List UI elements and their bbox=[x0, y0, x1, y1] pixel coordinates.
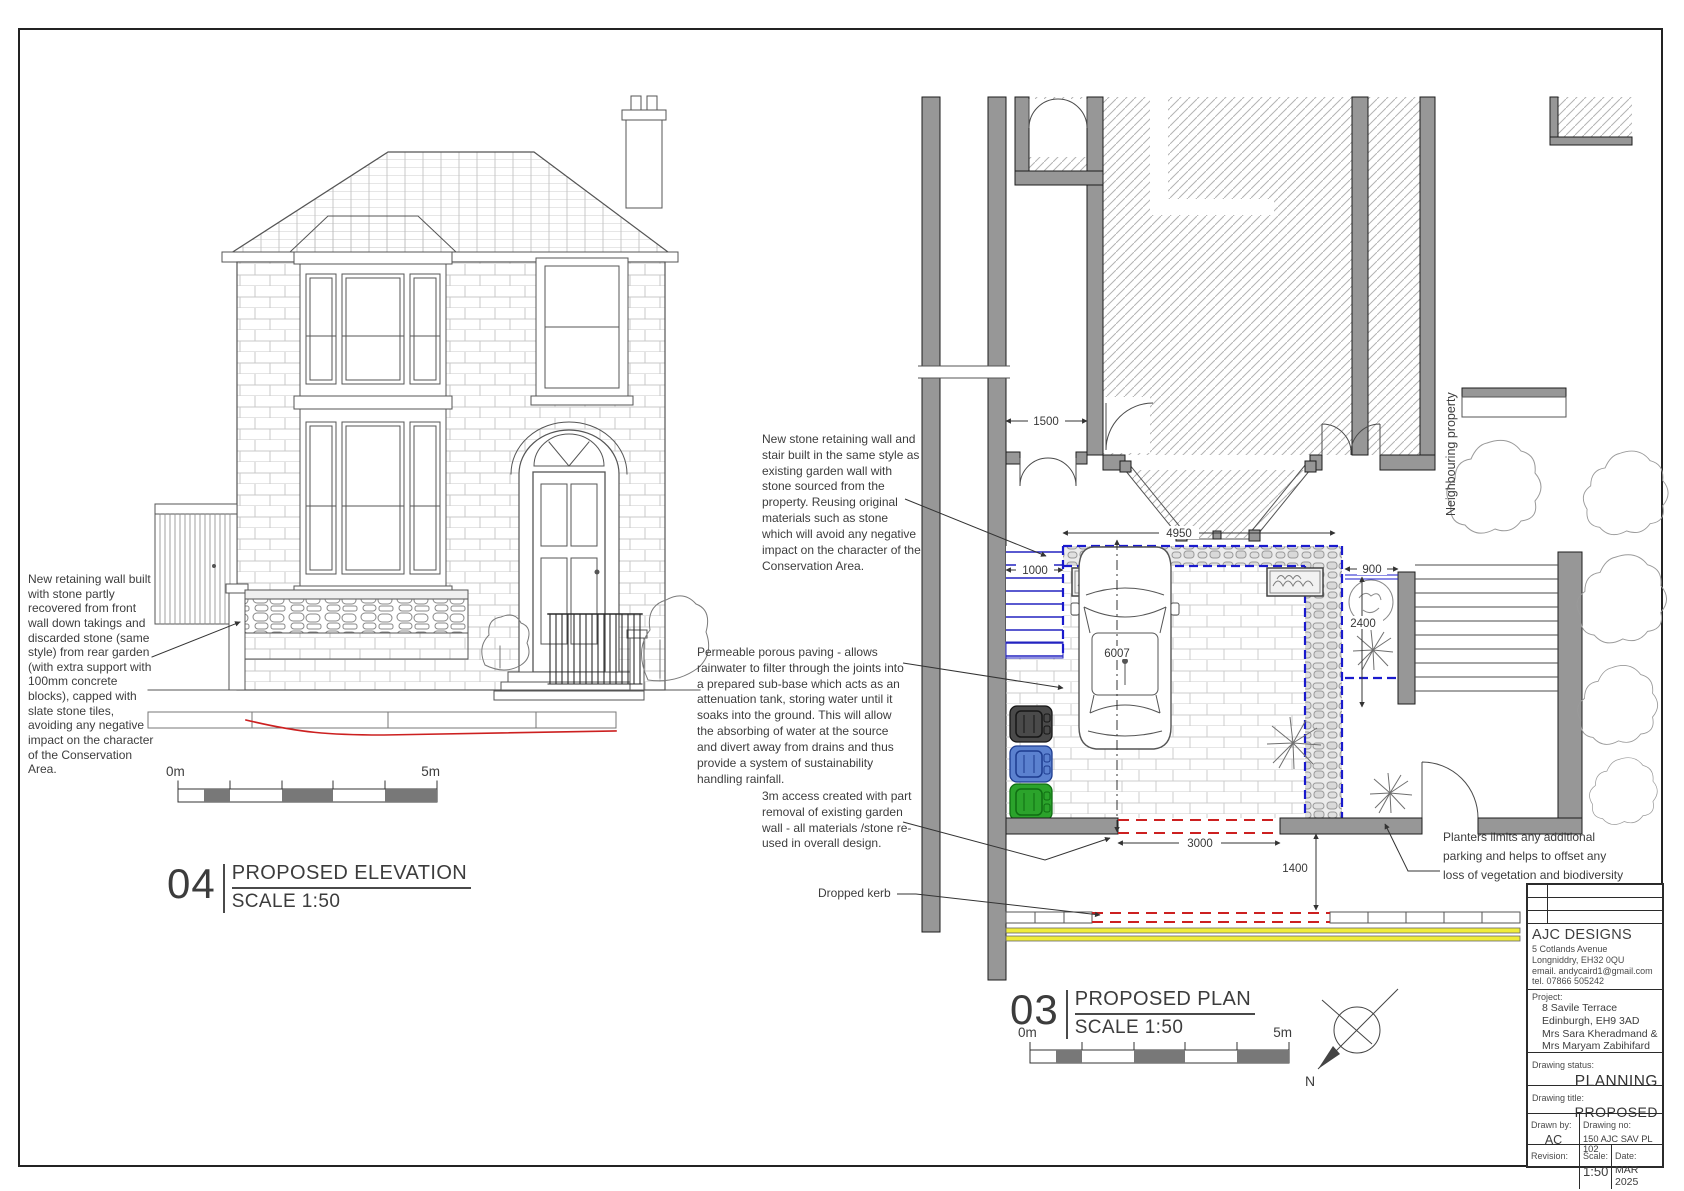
road-markings bbox=[1006, 928, 1520, 941]
drawn-by-label: Drawn by: bbox=[1531, 1120, 1572, 1130]
annotation-access: 3m access created with part removal of e… bbox=[762, 789, 922, 852]
drawing-no-label: Drawing no: bbox=[1583, 1120, 1631, 1130]
project-line: Edinburgh, EH9 3AD bbox=[1542, 1015, 1658, 1028]
scale-bar-end-label: 5m bbox=[1273, 1025, 1292, 1040]
roof bbox=[228, 152, 672, 255]
plan-title: 03 PROPOSED PLAN SCALE 1:50 bbox=[1010, 988, 1255, 1039]
chimney bbox=[622, 96, 666, 208]
revision-label: Revision: bbox=[1531, 1151, 1568, 1161]
title-divider bbox=[1066, 990, 1068, 1039]
project-block: Project: 8 Savile Terrace Edinburgh, EH9… bbox=[1528, 990, 1662, 1053]
leader-retaining-elevation bbox=[152, 622, 240, 657]
drawing-sheet: 0m 5m bbox=[0, 0, 1684, 1191]
scale-label: Scale: bbox=[1583, 1151, 1608, 1161]
title-divider bbox=[223, 864, 225, 913]
scale-value: 1:50 bbox=[1583, 1164, 1608, 1179]
dim-strip-depth: 2400 bbox=[1350, 618, 1376, 630]
revision-row bbox=[1528, 885, 1662, 898]
neighbour-stairs bbox=[1415, 565, 1558, 691]
company-name: AJC DESIGNS bbox=[1532, 927, 1658, 943]
base-wall-bar bbox=[148, 712, 616, 728]
plan-scale-text: SCALE 1:50 bbox=[1075, 1015, 1255, 1039]
company-address2: Longniddry, EH32 0QU bbox=[1532, 955, 1658, 966]
bin-green bbox=[1010, 784, 1052, 820]
annotation-dropped-kerb: Dropped kerb bbox=[818, 886, 928, 902]
neighbouring-property-label: Neighbouring property bbox=[1444, 392, 1458, 516]
elevation-title: 04 PROPOSED ELEVATION SCALE 1:50 bbox=[167, 862, 471, 913]
retaining-wall-elevation bbox=[245, 590, 468, 659]
dim-garden-width: 4950 bbox=[1166, 528, 1192, 540]
dim-stair-width: 1000 bbox=[1022, 565, 1048, 577]
date-value: MAR 2025 bbox=[1615, 1164, 1659, 1188]
annotation-new-stone-wall: New stone retaining wall and stair built… bbox=[762, 432, 922, 574]
scale-bar-elevation: 0m 5m bbox=[166, 764, 440, 802]
plan-number: 03 bbox=[1010, 988, 1059, 1039]
annotation-retaining-wall-elevation: New retaining wall built with stone part… bbox=[28, 572, 156, 777]
access-removed-wall bbox=[1118, 820, 1280, 833]
company-address1: 5 Cotlands Avenue bbox=[1532, 944, 1658, 955]
project-label: Project: bbox=[1532, 992, 1658, 1002]
neighbour-greenery bbox=[1447, 440, 1668, 824]
plan-title-text: PROPOSED PLAN bbox=[1075, 988, 1255, 1015]
revision-row bbox=[1528, 911, 1662, 924]
bay-window bbox=[290, 216, 456, 600]
project-line: Mrs Sara Kheradmand & bbox=[1542, 1028, 1658, 1041]
north-arrow: N bbox=[1305, 989, 1398, 1089]
elevation-number: 04 bbox=[167, 862, 216, 913]
scale-bar-start-label: 0m bbox=[166, 764, 185, 779]
dim-side-path: 1500 bbox=[1033, 416, 1059, 428]
annotation-planters: Planters limits any additional parking a… bbox=[1443, 828, 1625, 886]
dim-strip-width: 900 bbox=[1362, 564, 1381, 576]
top-right-building-hatch bbox=[1558, 97, 1632, 137]
company-block: AJC DESIGNS 5 Cotlands Avenue Longniddry… bbox=[1528, 924, 1662, 990]
project-line: 8 Savile Terrace bbox=[1542, 1002, 1658, 1015]
elevation-scale-text: SCALE 1:50 bbox=[232, 889, 471, 913]
dropped-kerb-dashed bbox=[1092, 913, 1330, 922]
dim-access-width: 3000 bbox=[1187, 838, 1213, 850]
wall-break bbox=[918, 366, 1010, 378]
scale-bar-end-label: 5m bbox=[421, 764, 440, 779]
company-tel: tel. 07866 505242 bbox=[1532, 976, 1658, 987]
date-label: Date: bbox=[1615, 1151, 1637, 1161]
new-stairs bbox=[1006, 546, 1063, 658]
dim-garden-depth: 6007 bbox=[1104, 648, 1130, 660]
upper-sash-window bbox=[531, 258, 633, 405]
neighbour-wall-fragment bbox=[1462, 397, 1566, 417]
planter-right bbox=[1267, 568, 1323, 596]
annotation-permeable-paving: Permeable porous paving - allows rainwat… bbox=[697, 645, 911, 787]
stone-band-right bbox=[1305, 566, 1342, 832]
bin-grey bbox=[1010, 706, 1052, 742]
dim-pavement-depth: 1400 bbox=[1282, 863, 1308, 875]
revision-scale-date-row: Revision: Scale: 1:50 Date: MAR 2025 bbox=[1528, 1145, 1662, 1189]
north-label: N bbox=[1305, 1073, 1315, 1089]
elevation-drawing: 0m 5m bbox=[148, 96, 709, 802]
revision-row bbox=[1528, 898, 1662, 911]
company-email: email. andycaird1@gmail.com bbox=[1532, 966, 1658, 977]
timber-fence bbox=[155, 504, 237, 624]
drawing-title-label: Drawing title: bbox=[1532, 1093, 1584, 1103]
drawing-linework: 0m 5m bbox=[0, 0, 1684, 1191]
drawn-by-row: Drawn by: AC Drawing no: 150 AJC SAV PL … bbox=[1528, 1114, 1662, 1145]
drawing-status-block: Drawing status: PLANNING bbox=[1528, 1053, 1662, 1086]
title-block: AJC DESIGNS 5 Cotlands Avenue Longniddry… bbox=[1526, 883, 1664, 1168]
project-line: Mrs Maryam Zabihifard bbox=[1542, 1040, 1658, 1053]
drawing-status-label: Drawing status: bbox=[1532, 1060, 1594, 1070]
elevation-title-text: PROPOSED ELEVATION bbox=[232, 862, 471, 889]
drawing-title-block: Drawing title: PROPOSED bbox=[1528, 1086, 1662, 1114]
bin-blue bbox=[1010, 746, 1052, 782]
